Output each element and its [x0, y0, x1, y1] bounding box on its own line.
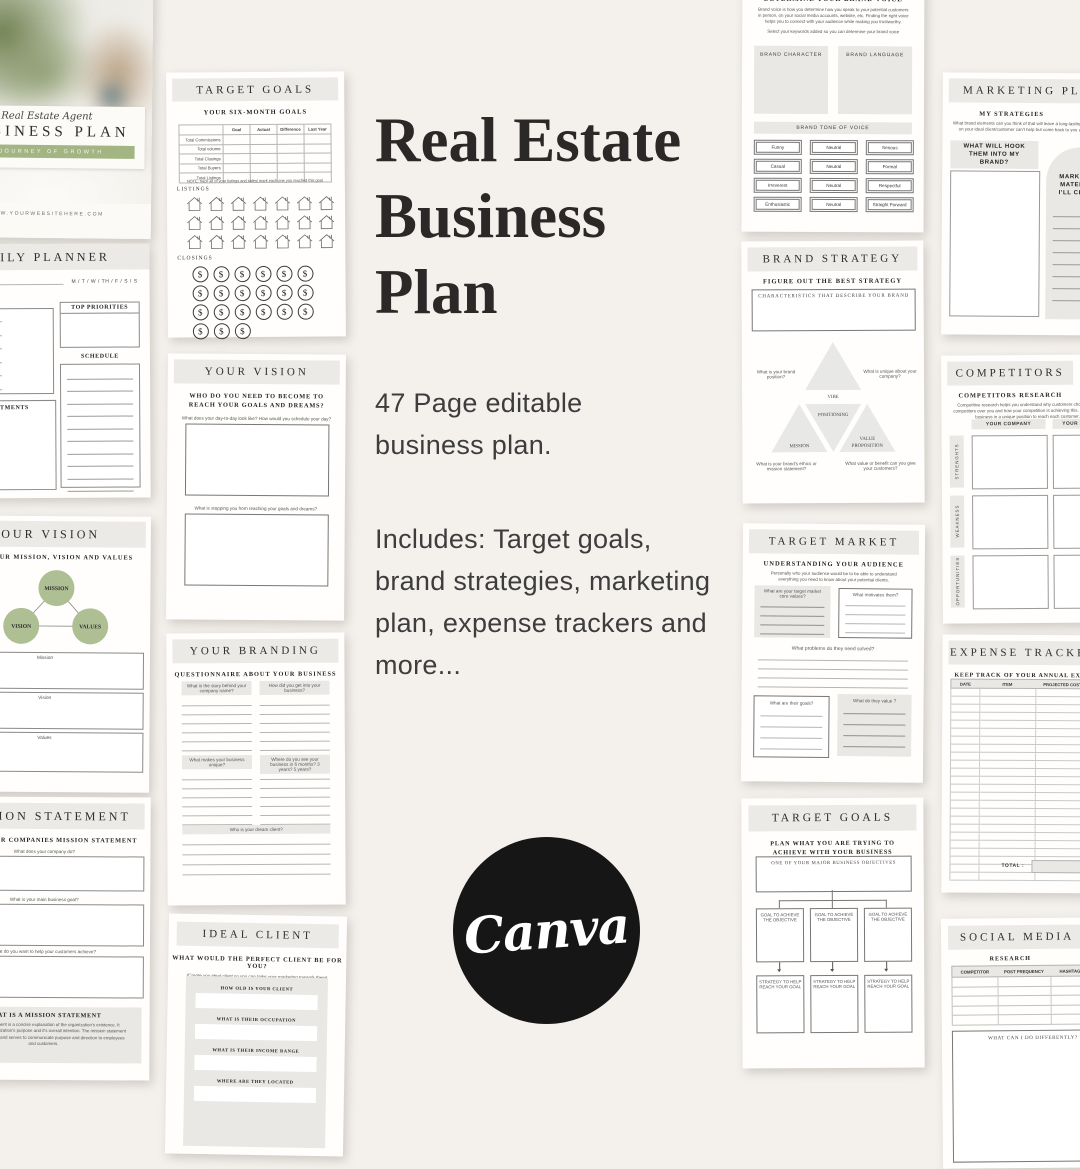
svg-text:MISSION: MISSION: [790, 444, 810, 449]
ruled-line: [182, 706, 252, 715]
page-mission-statement: MISSION STATEMENT CREATE YOUR COMPANIES …: [0, 796, 151, 1080]
market-q1-box: What are your target market core values?: [754, 585, 830, 638]
page-header: BRAND STRATEGY: [747, 247, 917, 272]
tree-line: [832, 890, 833, 900]
svg-text:VISION: VISION: [11, 624, 31, 630]
svg-text:POSITIONING: POSITIONING: [818, 413, 849, 418]
svg-text:VALUES: VALUES: [79, 624, 101, 630]
table-row-label: Total Closings: [180, 154, 224, 164]
house-icon: [207, 214, 226, 231]
house-icon: [272, 195, 291, 212]
headline-line-2: Business: [375, 178, 710, 254]
materials-label: MARKETING MATERIALS I'LL CREATE: [1053, 173, 1080, 197]
brand-language-box: BRAND LANGUAGE: [838, 46, 912, 114]
page-header: TARGET GOALS: [748, 805, 916, 832]
page-header: SOCIAL MEDIA: [948, 925, 1080, 950]
todo-item: [0, 315, 45, 329]
schedule-line: [67, 429, 133, 442]
strategy-box-label: STRATEGY TO HELP REACH YOUR GOAL: [811, 979, 857, 989]
page-brand-strategy: BRAND STRATEGY FIGURE OUT THE BEST STRAT…: [741, 241, 924, 504]
canva-logo: Canva: [453, 837, 640, 1024]
page-daily-planner: DAILY PLANNER M / T / W / TH / F / S / S…: [0, 243, 151, 498]
page-target-market: TARGET MARKET UNDERSTANDING YOUR AUDIENC…: [741, 523, 925, 783]
col-post-frequency: POST FREQUENCY: [997, 966, 1050, 976]
market-q5-box: What do they value ?: [837, 694, 912, 757]
ruled-line: [260, 697, 330, 706]
page-target-goals-2: TARGET GOALS PLAN WHAT YOU ARE TRYING TO…: [741, 798, 924, 1069]
ruled-line: [260, 771, 330, 780]
ruled-line: [260, 742, 330, 751]
schedule-line: [68, 479, 134, 492]
page-header: TARGET GOALS: [172, 77, 338, 101]
dollar-icon: $: [213, 323, 229, 339]
branding-q5-lines: [182, 835, 330, 876]
strategy-box-3: STRATEGY TO HELP REACH YOUR GOAL: [864, 975, 912, 1033]
characteristics-label: CHARACTERISTICS THAT DESCRIBE YOUR BRAND: [753, 294, 915, 300]
ruled-line: [182, 807, 252, 816]
expense-table-body: [949, 689, 1080, 882]
ruled-line: [260, 715, 330, 724]
branding-q3-label: What makes your business unique?: [182, 755, 252, 769]
tone-option: Respectful: [866, 178, 914, 193]
house-icon: [317, 232, 336, 249]
page-header: DAILY PLANNER: [0, 243, 149, 270]
schedule-label: SCHEDULE: [60, 353, 140, 359]
info-box: WHAT IS A MISSION STATEMENT A mission st…: [0, 1006, 142, 1063]
market-q4-box: What are their goals?: [753, 695, 830, 758]
page-social-media: SOCIAL MEDIA RESEARCH COMPETITOR POST FR…: [941, 917, 1080, 1169]
total-label: TOTAL :: [1001, 863, 1024, 869]
cover-card: Real Estate Agent BUSINESS PLAN A JOURNE…: [0, 105, 145, 169]
dollar-icon: $: [297, 265, 313, 281]
goal-box-label: GOAL TO ACHIEVE THE OBJECTIVE: [865, 912, 911, 922]
cover-website: WWW.YOURWEBSITEHERE.COM: [0, 210, 104, 238]
todo-item-line: [0, 348, 2, 349]
page-header: YOUR VISION: [0, 520, 146, 547]
dollar-icon: $: [276, 303, 292, 319]
field-1-input: [195, 993, 317, 1010]
branding-q5-label: Who is your dream client?: [182, 825, 330, 835]
table-cell: [278, 135, 305, 145]
svg-text:MISSION: MISSION: [44, 586, 68, 592]
listing-description-1: 47 Page editable business plan.: [375, 382, 695, 466]
page-header: YOUR VISION: [174, 359, 340, 384]
market-q2-box: What motivates them?: [838, 588, 912, 639]
your-competitor-header: YOUR COMPETITOR: [1053, 418, 1080, 429]
todo-item: [0, 355, 45, 369]
weakness-label: WEAKNESS: [950, 495, 964, 547]
col-item: ITEM: [979, 680, 1035, 688]
tone-option: Casual: [754, 159, 802, 174]
page-subtitle: WHAT WOULD THE PERFECT CLIENT BE FOR YOU…: [168, 954, 346, 971]
page-subtitle: QUESTIONNAIRE ABOUT YOUR BUSINESS: [166, 671, 344, 679]
dollar-icon: $: [213, 266, 229, 282]
house-icon: [273, 214, 292, 231]
table-header-cell: Goal: [223, 125, 250, 135]
cover-footer: WWW.YOURWEBSITEHERE.COM: [0, 202, 151, 239]
page-subtitle: UNDERSTANDING YOUR AUDIENCE: [743, 560, 925, 569]
cover-script-title: Real Estate Agent: [0, 110, 145, 123]
ruled-line: [182, 742, 252, 751]
ruled-line: [843, 714, 905, 726]
date-line: [0, 284, 64, 286]
weakness-competitor-box: [1053, 494, 1080, 549]
page-brand-voice: DETERMINE YOUR BRAND VOICE Brand voice i…: [742, 0, 925, 232]
todo-box: [0, 308, 54, 395]
todo-item-line: [0, 375, 2, 376]
vision-box: Vision: [0, 691, 144, 729]
page-header: MARKETING PLAN: [949, 78, 1080, 103]
field-4-input: [194, 1086, 316, 1103]
values-box-label: Values: [0, 735, 142, 741]
hook-label: WHAT WILL HOOK THEM INTO MY BRAND?: [956, 142, 1032, 167]
question-3-box: [0, 955, 144, 998]
priorities-label: TOP PRIORITIES: [61, 303, 139, 314]
differently-label: WHAT CAN I DO DIFFERENTLY?: [953, 1035, 1080, 1041]
opportunities-label: OPPORTUNITIES: [950, 555, 964, 607]
listings-label: LISTINGS: [177, 186, 210, 192]
page-header: COMPETITORS: [947, 361, 1073, 386]
social-table-header: COMPETITOR POST FREQUENCY HASHTAGS: [951, 964, 1080, 977]
ruled-line: [182, 697, 252, 706]
page-header: TARGET MARKET: [749, 529, 919, 554]
page-your-branding: YOUR BRANDING QUESTIONNAIRE ABOUT YOUR B…: [166, 633, 345, 906]
table-cell: [251, 154, 278, 164]
ruled-line: [182, 798, 252, 807]
page-header: YOUR BRANDING: [172, 639, 338, 664]
ruled-line: [760, 738, 822, 750]
table-cell: [305, 153, 332, 163]
strategy-question-tr: What is unique about your company?: [862, 369, 918, 379]
svg-text:VALUE: VALUE: [860, 437, 876, 442]
tone-option: Serious: [866, 140, 914, 155]
dollar-icon: $: [276, 265, 292, 281]
dollar-icon: $: [255, 265, 271, 281]
appointments-label: APPOINTMENTS: [0, 405, 55, 412]
table-cell: [251, 144, 278, 154]
tone-option: Enthusiastic: [754, 197, 802, 212]
ruled-line: [260, 816, 330, 825]
vision-box-label: Vision: [0, 695, 143, 701]
mission-box: Mission: [0, 651, 144, 689]
ruled-line: [1052, 277, 1080, 289]
house-icon: [251, 233, 270, 250]
tone-option: Straight Forward: [866, 197, 914, 212]
todo-item-line: [0, 321, 2, 322]
page-subtitle: CREATE YOUR COMPANIES MISSION STATEMENT: [0, 836, 151, 844]
market-q4-label: What are their goals?: [761, 700, 823, 706]
table-row-label: Total volume: [180, 145, 224, 155]
cover-banner: A JOURNEY OF GROWTH: [0, 144, 135, 159]
tone-option: Neutral: [810, 159, 858, 174]
branding-q3-lines: [182, 771, 252, 825]
field-3-label: WHAT IS THEIR INCOME RANGE: [185, 1047, 327, 1054]
tone-option: Neutral: [810, 197, 858, 212]
page-subtitle: COMPETITORS RESEARCH: [941, 392, 1079, 400]
field-1-label: HOW OLD IS YOUR CLIENT: [186, 985, 328, 992]
ruled-line: [1052, 289, 1080, 301]
dollar-icon: $: [297, 284, 313, 300]
ruled-line: [182, 771, 252, 780]
dollar-icon: $: [297, 303, 313, 319]
dollar-icon: $: [192, 323, 208, 339]
social-table-body: [951, 976, 1080, 1025]
client-profile-box: HOW OLD IS YOUR CLIENT WHAT IS THEIR OCC…: [183, 976, 328, 1148]
house-icon: [206, 195, 225, 212]
question-2-label: What is stopping you from reaching your …: [177, 505, 335, 511]
strengths-label: STRENGHTS: [950, 435, 964, 487]
dollar-icon: $: [192, 266, 208, 282]
strategy-box-2: STRATEGY TO HELP REACH YOUR GOAL: [810, 975, 858, 1033]
todo-item-line: [0, 389, 2, 390]
page-marketing-plan: MARKETING PLAN MY STRATEGIES What brand …: [941, 72, 1080, 335]
values-box: Values: [0, 731, 143, 772]
listing-headline: Real Estate Business Plan: [375, 102, 710, 330]
goal-box-2: GOAL TO ACHIEVE THE OBJECTIVE: [810, 908, 858, 962]
question-1-box: [185, 424, 329, 497]
strategy-box-label: STRATEGY TO HELP REACH YOUR GOAL: [757, 979, 803, 989]
table-cell: [305, 144, 332, 154]
arrow-head-icon: [830, 969, 834, 972]
goal-box-label: GOAL TO ACHIEVE THE OBJECTIVE: [811, 912, 857, 922]
ruled-line: [1052, 265, 1080, 277]
ruled-line: [1053, 253, 1080, 265]
page-vision-values: YOUR VISION DEFINE YOUR MISSION, VISION …: [0, 515, 151, 792]
dollar-icon: $: [213, 285, 229, 301]
branding-q2-lines: [260, 697, 330, 751]
svg-text:VIBE: VIBE: [828, 395, 839, 400]
closings-label: CLOSINGS: [177, 255, 212, 261]
market-q2-label: What motivates them?: [845, 592, 905, 598]
ruled-line: [760, 716, 822, 728]
schedule-line: [67, 417, 133, 430]
field-3-input: [194, 1055, 316, 1072]
headline-line-1: Real Estate: [375, 102, 710, 178]
ruled-line: [1053, 205, 1080, 217]
expense-row: [950, 873, 1080, 882]
ruled-line: [182, 816, 252, 825]
dollar-icon: $: [255, 303, 271, 319]
page-subtitle: PLAN WHAT YOU ARE TRYING TO ACHIEVE WITH…: [762, 839, 904, 858]
market-q1-label: What are your target market core values?: [760, 588, 824, 599]
schedule-line: [67, 367, 133, 380]
svg-text:PROPOSITION: PROPOSITION: [852, 444, 884, 449]
house-icon: [295, 233, 314, 250]
hook-box: [949, 170, 1040, 317]
page-your-vision: YOUR VISION WHO DO YOU NEED TO BECOME TO…: [166, 353, 346, 620]
field-4-label: WHERE ARE THEY LOCATED: [184, 1078, 326, 1085]
house-icon: [185, 214, 204, 231]
strategy-question-tl: What is your brand position?: [748, 369, 804, 379]
question-2-box: [184, 514, 328, 587]
ruled-line: [758, 678, 908, 688]
market-q5-label: What do they value ?: [844, 698, 906, 704]
materials-arch: MARKETING MATERIALS I'LL CREATE: [1045, 147, 1080, 319]
page-expense-tracker: EXPENSE TRACKER KEEP TRACK OF YOUR ANNUA…: [941, 635, 1080, 894]
ruled-line: [843, 736, 905, 748]
table-cell: [305, 163, 332, 173]
ruled-line: [260, 789, 330, 798]
listings-grid: [183, 193, 339, 251]
ruled-line: [843, 703, 905, 715]
ruled-line: [845, 624, 905, 634]
house-icon: [185, 233, 204, 250]
schedule-line: [67, 454, 133, 467]
ruled-line: [260, 733, 330, 742]
house-icon: [207, 233, 226, 250]
comp-paragraph: Competitive research helps you understan…: [947, 401, 1080, 420]
house-icon: [294, 195, 313, 212]
table-header-cell: Actual: [250, 125, 277, 135]
ruled-line: [260, 807, 330, 816]
days-of-week: M / T / W / TH / F / S / S: [71, 279, 137, 285]
goal-box-3: GOAL TO ACHIEVE THE OBJECTIVE: [864, 908, 912, 962]
page-header: EXPENSE TRACKER: [949, 641, 1080, 666]
schedule-line: [68, 467, 134, 480]
total-box: [1031, 860, 1080, 873]
house-icon: [229, 214, 248, 231]
arrow-line: [886, 962, 887, 969]
table-cell: [305, 134, 332, 144]
characteristics-box: CHARACTERISTICS THAT DESCRIBE YOUR BRAND: [752, 289, 916, 332]
table-cell: [278, 154, 305, 164]
todo-item: [0, 369, 45, 383]
table-cell: [224, 154, 251, 164]
dollar-icon: $: [234, 285, 250, 301]
canva-logo-text: Canva: [462, 895, 631, 965]
ruled-line: [182, 733, 252, 742]
brand-language-label: BRAND LANGUAGE: [838, 52, 912, 58]
strategy-pyramid: VIBE POSITIONING MISSION VALUE PROPOSITI…: [742, 336, 925, 459]
dollar-icon: $: [213, 304, 229, 320]
field-2-label: WHAT IS THEIR OCCUPATION: [185, 1016, 327, 1023]
goal-box-1: GOAL TO ACHIEVE THE OBJECTIVE: [756, 908, 804, 962]
ruled-line: [183, 865, 331, 876]
question-2-box: [0, 903, 144, 946]
ruled-line: [260, 724, 330, 733]
mkt-paragraph: What brand elements can you think of tha…: [951, 120, 1080, 133]
todo-item: [0, 328, 45, 342]
brand-character-label: BRAND CHARACTER: [754, 52, 828, 58]
dollar-icon: $: [234, 266, 250, 282]
todo-item-line: [0, 335, 2, 336]
dollar-icon: $: [192, 304, 208, 320]
dollar-icon: $: [234, 304, 250, 320]
page-subtitle: YOUR SIX-MONTH GOALS: [166, 108, 344, 116]
tree-line: [832, 900, 833, 908]
page-subtitle: RESEARCH: [941, 956, 1079, 963]
ruled-line: [260, 798, 330, 807]
strengths-competitor-box: [1053, 434, 1080, 489]
ruled-line: [760, 705, 822, 717]
branding-q1-label: What is the story behind your company na…: [182, 681, 252, 695]
market-paragraph: Personally who your audience would be to…: [761, 570, 907, 583]
house-icon: [295, 214, 314, 231]
closings-grid: $$$$$$$$$$$$$$$$$$$$$: [189, 263, 330, 340]
strategy-box-1: STRATEGY TO HELP REACH YOUR GOAL: [756, 975, 804, 1033]
col-competitor: COMPETITOR: [952, 966, 997, 976]
page-subtitle: WHO DO YOU NEED TO BECOME TO REACH YOUR …: [186, 392, 328, 411]
branding-q1-lines: [182, 697, 252, 751]
table-row-label: Total Buyers: [180, 164, 224, 174]
question-2-label: What is your main business goal?: [0, 896, 142, 902]
todo-item-line: [0, 362, 2, 363]
schedule-line: [67, 379, 133, 392]
page-competitors: COMPETITORS COMPETITORS RESEARCH Competi…: [941, 354, 1080, 623]
page-target-goals-1: TARGET GOALS YOUR SIX-MONTH GOALS Goal A…: [166, 71, 346, 337]
mission-box-label: Mission: [0, 655, 143, 661]
schedule-line: [67, 442, 133, 455]
cover-title: BUSINESS PLAN: [0, 123, 145, 142]
page-cover: Real Estate Agent BUSINESS PLAN A JOURNE…: [0, 0, 153, 239]
question-1-label: What does your day-to-day look like? How…: [177, 415, 335, 421]
col-hashtags: HASHTAGS: [1050, 965, 1080, 975]
house-icon: [251, 214, 270, 231]
hook-label-box: WHAT WILL HOOK THEM INTO MY BRAND?: [950, 140, 1038, 169]
table-cell: [224, 135, 251, 145]
differently-box: WHAT CAN I DO DIFFERENTLY?: [952, 1029, 1080, 1162]
house-icon: [273, 233, 292, 250]
voice-select-line: Select your keywords added so you can de…: [742, 29, 924, 35]
ruled-line: [760, 727, 822, 739]
your-company-header: YOUR COMPANY: [972, 419, 1046, 430]
goal-box-label: GOAL TO ACHIEVE THE OBJECTIVE: [757, 912, 803, 922]
table-cell: [224, 145, 251, 155]
question-3-label: What do you want to help your customers …: [0, 948, 142, 954]
opportunities-company-box: [972, 555, 1048, 610]
ruled-line: [182, 724, 252, 733]
appointments-box: APPOINTMENTS: [0, 400, 57, 491]
info-title: WHAT IS A MISSION STATEMENT: [0, 1012, 128, 1020]
house-icon: [250, 195, 269, 212]
tone-option: Neutral: [810, 178, 858, 193]
table-cell: [251, 163, 278, 173]
ruled-line: [1053, 217, 1080, 229]
tone-of-voice-bar: BRAND TONE OF VOICE: [754, 122, 912, 135]
dollar-icon: $: [192, 285, 208, 301]
tone-option: Funny: [754, 140, 802, 155]
strategy-box-label: STRATEGY TO HELP REACH YOUR GOAL: [865, 979, 911, 989]
info-text: A mission statement is a concise explana…: [0, 1022, 128, 1048]
table-note: NOTE: track all of your listings and sal…: [179, 177, 331, 183]
social-row: [953, 1014, 1080, 1025]
house-icon: [184, 195, 203, 212]
mission-vision-values-diagram: MISSION VISION VALUES: [0, 559, 151, 648]
todo-item: [0, 382, 45, 396]
market-q3-lines: [758, 651, 908, 688]
page-header: MISSION STATEMENT: [0, 802, 145, 829]
page-ideal-client: IDEAL CLIENT WHAT WOULD THE PERFECT CLIE…: [165, 913, 347, 1156]
arrow-head-icon: [884, 969, 888, 972]
objective-box: ONE OF YOUR MAJOR BUSINESS OBJECTIVES: [756, 856, 912, 893]
table-cell: [278, 144, 305, 154]
page-subtitle: FIGURE OUT THE BEST STRATEGY: [742, 278, 924, 286]
table-cell: [224, 164, 251, 174]
schedule-line: [67, 392, 133, 405]
question-1-label: What does your company do?: [0, 848, 142, 854]
house-icon: [317, 213, 336, 230]
goals-table: Goal Actual Difference Last Year Total C…: [178, 123, 331, 183]
house-icon: [228, 195, 247, 212]
page-header: IDEAL CLIENT: [177, 922, 339, 949]
ruled-line: [260, 780, 330, 789]
weakness-company-box: [972, 495, 1048, 550]
strategy-question-br: What value or benefit can you give your …: [844, 461, 916, 471]
branding-q4-lines: [260, 771, 330, 825]
tone-option: Irreverent: [754, 178, 802, 193]
table-header-cell: Difference: [277, 125, 304, 135]
tree-line: [779, 900, 780, 908]
